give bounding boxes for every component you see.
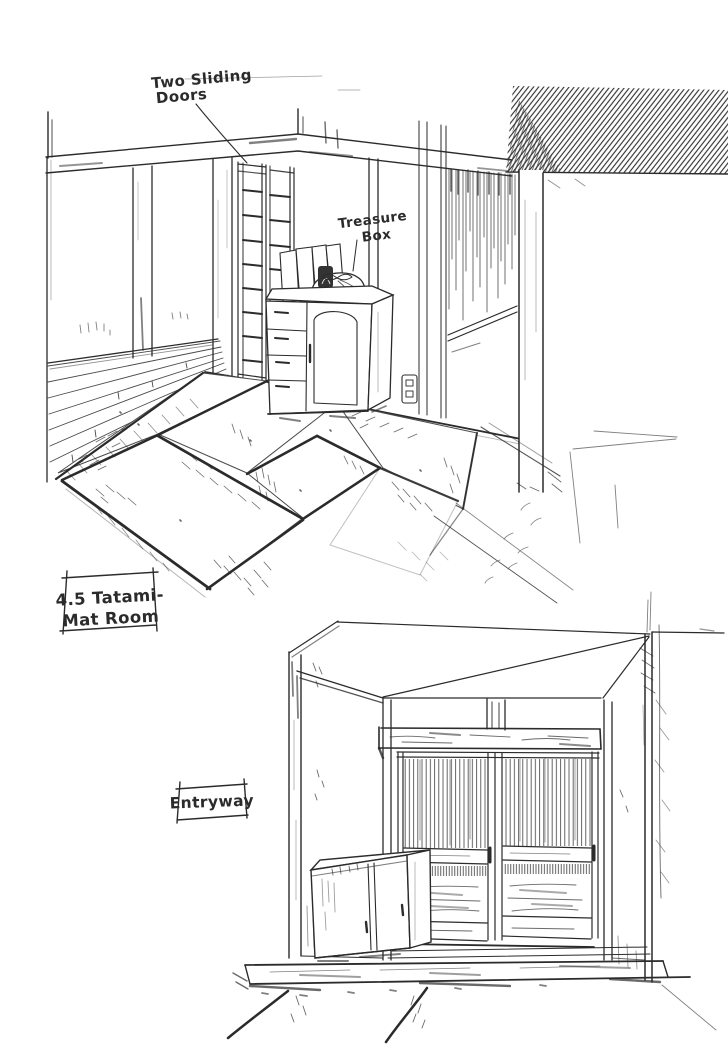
callout-text-treasure-line2: Box <box>361 226 392 245</box>
callout-leader-line <box>353 240 357 271</box>
left-door-slats <box>404 759 487 848</box>
tansu-cabinet <box>266 244 393 421</box>
tatami-mats <box>56 373 477 597</box>
entry-floor <box>228 944 716 1042</box>
corner-pillar <box>517 170 562 492</box>
right-door-comb-band <box>503 864 591 874</box>
tatami-room-illustration: Two Sliding Doors Treasure Box 4.5 Tatam… <box>46 66 728 634</box>
lintel-beam <box>46 109 512 176</box>
room-label-line2: Mat Room <box>62 606 160 630</box>
wall-outlet <box>402 375 417 403</box>
doorway-opening <box>419 121 517 418</box>
cabinet-body <box>266 286 393 414</box>
callout-leader-line <box>196 104 247 163</box>
tatami-room-label-box: 4.5 Tatami- Mat Room <box>55 568 164 634</box>
treasure-box-callout: Treasure Box <box>337 208 408 271</box>
sketch-page: Two Sliding Doors Treasure Box 4.5 Tatam… <box>0 0 728 1044</box>
entry-right-wall <box>618 592 670 982</box>
entryway-label-box: Entryway <box>169 779 254 823</box>
entryway-label: Entryway <box>169 792 254 813</box>
right-door-slats <box>503 759 591 846</box>
two-sliding-doors-callout: Two Sliding Doors <box>151 66 253 163</box>
callout-text-sliding-doors-line2: Doors <box>155 85 208 107</box>
shoe-cabinet <box>311 850 431 961</box>
entryway-illustration: Entryway <box>169 592 724 1042</box>
entry-transom <box>383 698 601 730</box>
